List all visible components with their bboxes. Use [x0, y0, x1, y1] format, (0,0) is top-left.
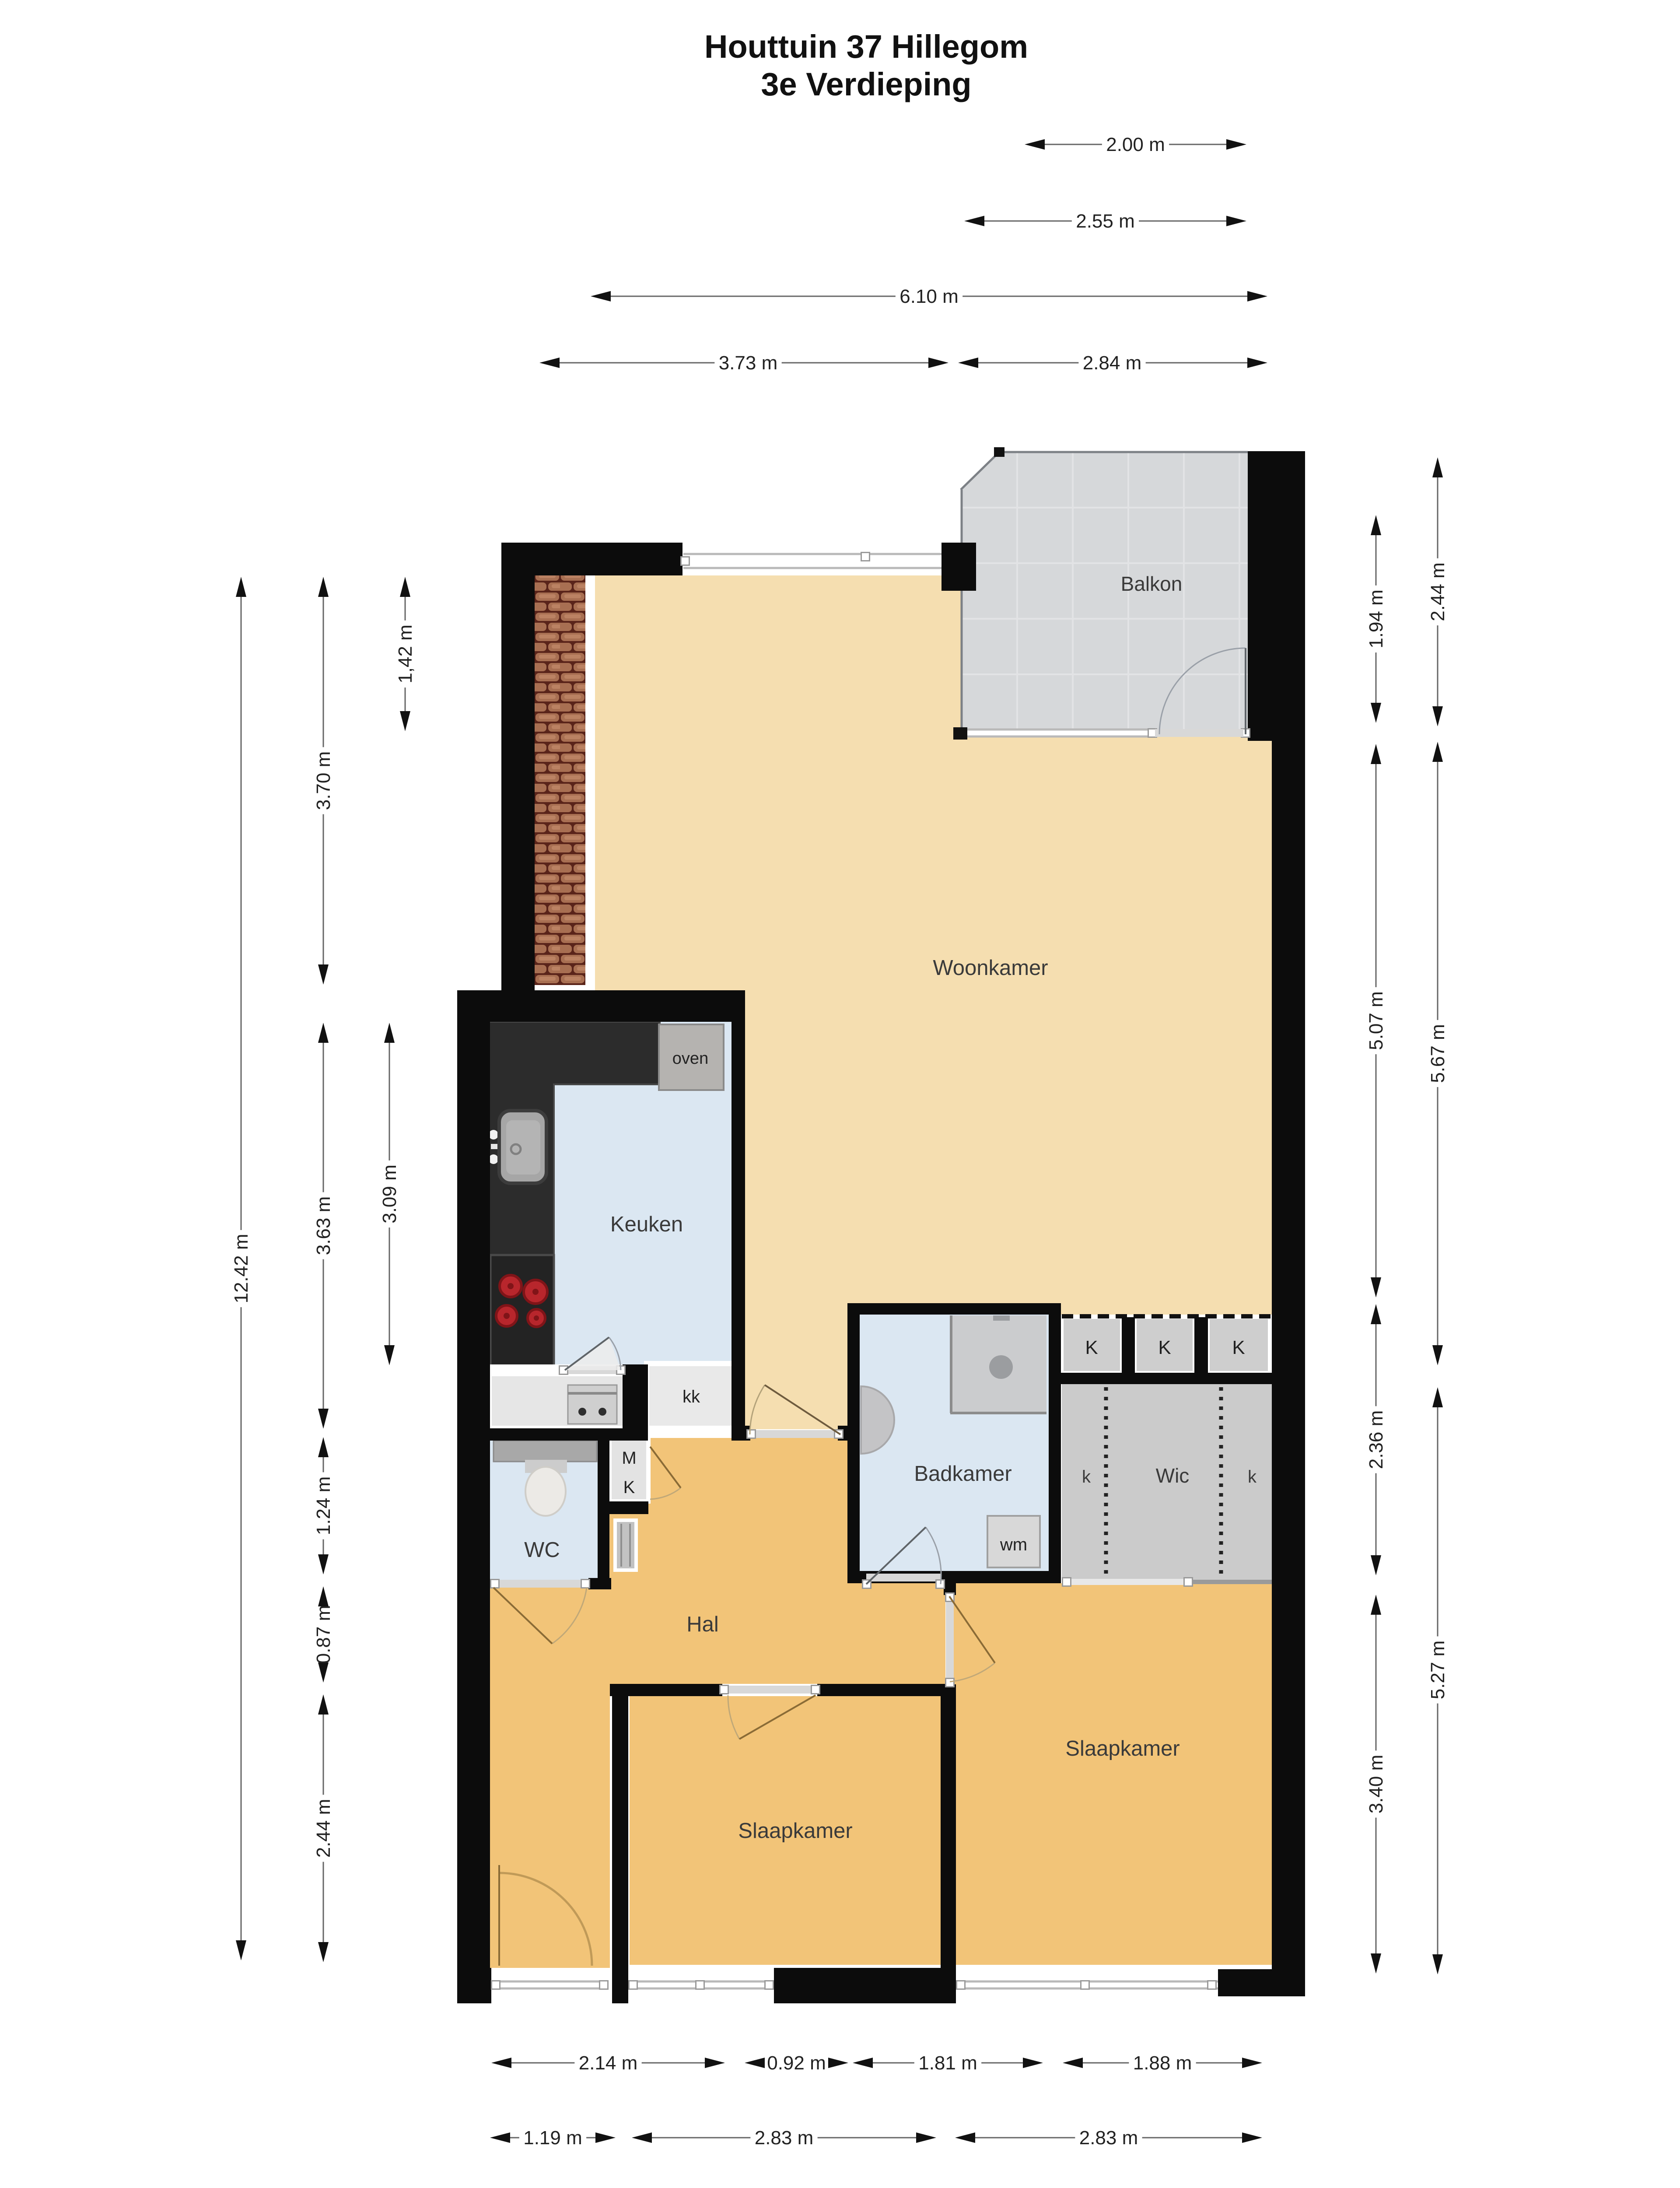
svg-text:K: K: [1232, 1337, 1245, 1358]
svg-text:1.88 m: 1.88 m: [1133, 2052, 1192, 2074]
svg-text:3e Verdieping: 3e Verdieping: [761, 66, 971, 102]
svg-text:12.42 m: 12.42 m: [231, 1234, 252, 1304]
svg-text:1.19 m: 1.19 m: [523, 2127, 582, 2149]
svg-text:Slaapkamer: Slaapkamer: [1065, 1737, 1179, 1760]
svg-text:1,42 m: 1,42 m: [395, 624, 416, 684]
svg-text:5.07 m: 5.07 m: [1365, 991, 1387, 1050]
svg-text:K: K: [1158, 1337, 1171, 1358]
svg-text:Houttuin 37 Hillegom: Houttuin 37 Hillegom: [704, 28, 1028, 65]
svg-text:Keuken: Keuken: [610, 1213, 683, 1236]
svg-text:oven: oven: [672, 1049, 708, 1068]
svg-text:2.00 m: 2.00 m: [1106, 134, 1165, 155]
svg-text:0.92 m: 0.92 m: [767, 2052, 826, 2074]
svg-text:1.94 m: 1.94 m: [1365, 589, 1387, 649]
svg-text:wm: wm: [1000, 1535, 1027, 1554]
svg-text:K: K: [1085, 1337, 1098, 1358]
svg-text:k: k: [1248, 1467, 1257, 1487]
svg-text:kk: kk: [682, 1387, 700, 1406]
svg-text:WC: WC: [524, 1538, 560, 1562]
svg-text:5.67 m: 5.67 m: [1427, 1024, 1449, 1083]
svg-text:2.83 m: 2.83 m: [1079, 2127, 1138, 2149]
svg-text:6.10 m: 6.10 m: [899, 286, 959, 307]
svg-text:3.09 m: 3.09 m: [379, 1164, 400, 1224]
svg-text:0.87 m: 0.87 m: [313, 1605, 334, 1664]
svg-text:Wic: Wic: [1156, 1464, 1190, 1487]
svg-text:Badkamer: Badkamer: [914, 1462, 1011, 1486]
svg-text:M: M: [622, 1448, 636, 1468]
svg-text:5.27 m: 5.27 m: [1427, 1641, 1449, 1700]
svg-text:2.36 m: 2.36 m: [1365, 1410, 1387, 1469]
svg-text:2.44 m: 2.44 m: [1427, 562, 1449, 621]
svg-text:1.81 m: 1.81 m: [918, 2052, 977, 2074]
svg-text:1.24 m: 1.24 m: [313, 1476, 334, 1536]
svg-text:2.44 m: 2.44 m: [313, 1799, 334, 1858]
svg-text:Hal: Hal: [686, 1613, 719, 1636]
svg-text:2.55 m: 2.55 m: [1076, 210, 1135, 232]
svg-text:Slaapkamer: Slaapkamer: [738, 1819, 852, 1843]
svg-text:2.84 m: 2.84 m: [1083, 352, 1142, 374]
svg-text:k: k: [1082, 1467, 1091, 1487]
svg-text:Balkon: Balkon: [1121, 572, 1183, 595]
svg-text:3.73 m: 3.73 m: [719, 352, 778, 374]
svg-text:3.40 m: 3.40 m: [1365, 1755, 1387, 1814]
svg-text:3.70 m: 3.70 m: [313, 751, 334, 810]
svg-text:2.14 m: 2.14 m: [579, 2052, 638, 2074]
svg-text:3.63 m: 3.63 m: [313, 1196, 334, 1255]
svg-text:Woonkamer: Woonkamer: [933, 956, 1048, 980]
svg-text:K: K: [623, 1478, 635, 1497]
svg-text:2.83 m: 2.83 m: [755, 2127, 814, 2149]
